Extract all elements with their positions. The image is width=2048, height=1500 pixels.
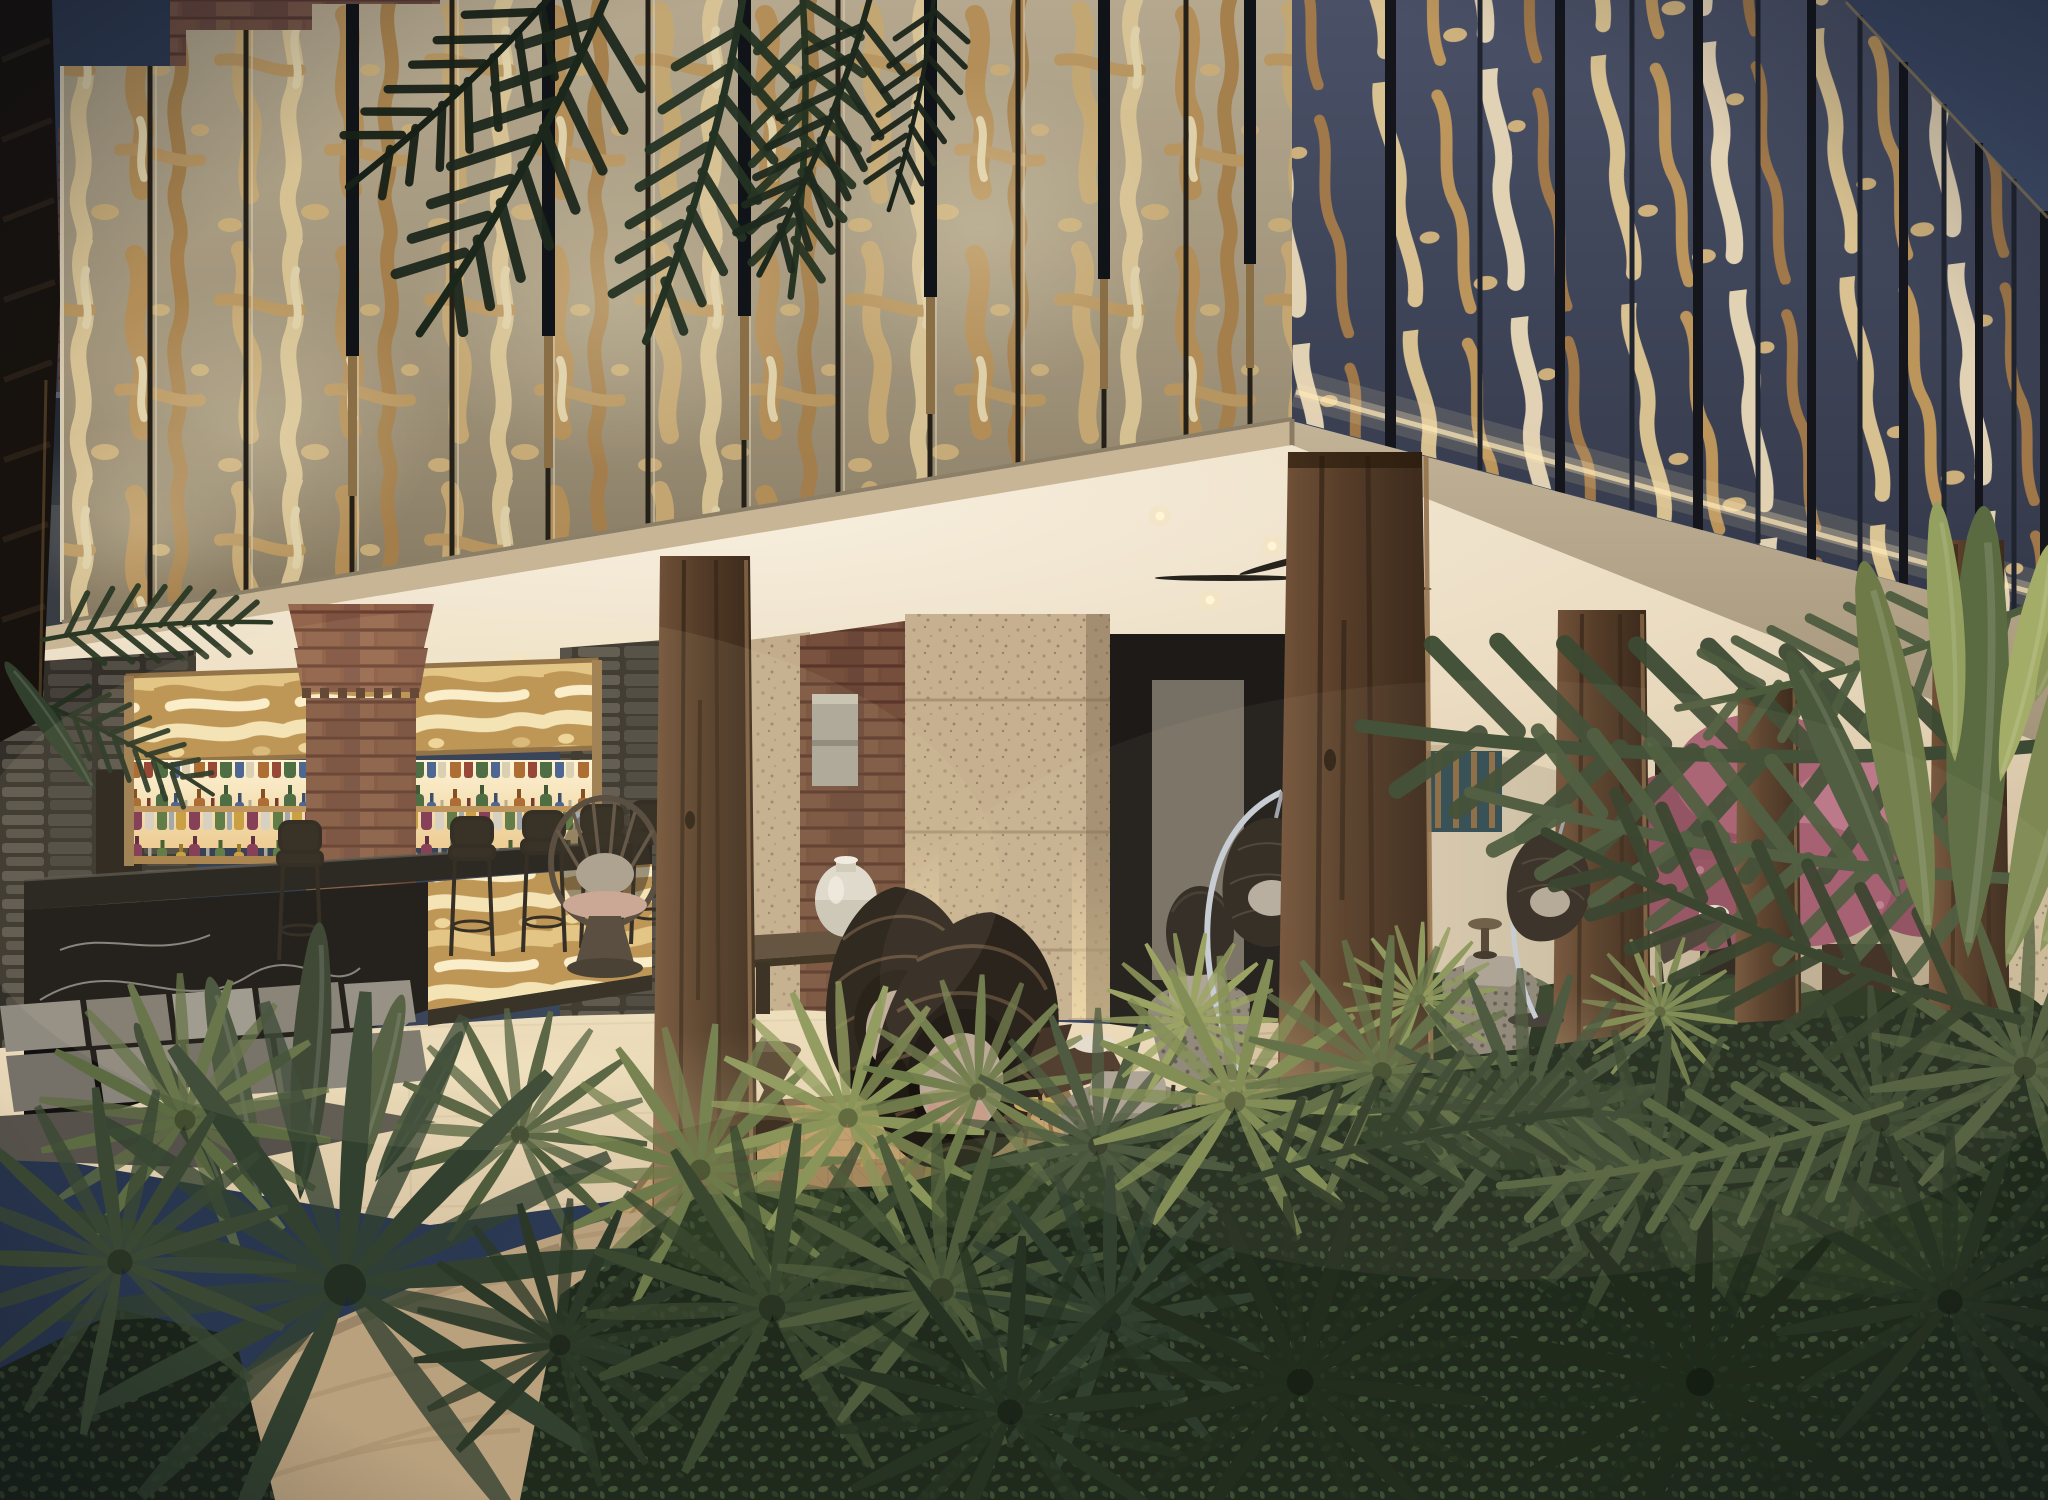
- color-grade: [0, 0, 2048, 1500]
- rendering-canvas: [0, 0, 2048, 1500]
- resort-rendering: [0, 0, 2048, 1500]
